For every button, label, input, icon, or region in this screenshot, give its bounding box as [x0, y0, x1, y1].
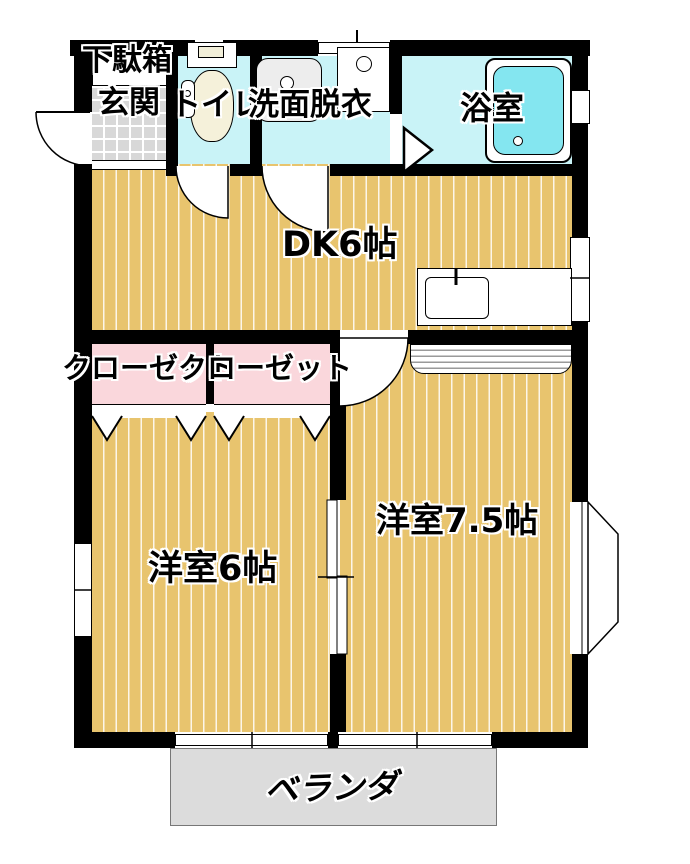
wall-dk-south: [408, 330, 588, 344]
bathroom-label: 浴室: [460, 92, 524, 124]
wall-toprow-dk: [330, 164, 572, 176]
bathroom-window: [570, 90, 590, 124]
genkan-label: 玄関: [98, 88, 160, 119]
wall-top: [390, 40, 590, 56]
bathtub-drain: [513, 136, 523, 146]
closet-left-door-band: [92, 404, 206, 418]
veranda: ベランダ: [170, 748, 497, 826]
wall-toprow-dk: [166, 164, 178, 176]
bath-doorway: [390, 114, 402, 164]
washroom-label: 洗面脱衣: [248, 90, 372, 121]
veranda-window-right: [338, 734, 492, 746]
washing-machine-door: [356, 56, 372, 72]
getabako-label: 下駄箱: [82, 46, 172, 76]
closet-right-label: クローゼット: [178, 354, 352, 383]
toilet-tank-lid: [198, 46, 224, 58]
wall-right: [572, 124, 588, 237]
western75-label: 洋室7.5帖: [376, 504, 538, 538]
veranda-label: ベランダ: [263, 768, 403, 806]
wall-right: [572, 322, 588, 502]
wall-room-divider: [330, 654, 346, 732]
wall-top: [223, 40, 318, 56]
wall-bottom: [74, 732, 175, 748]
bay-window-icon: [570, 502, 618, 654]
floor-plan: ベランダ: [0, 0, 690, 864]
wall-bottom: [328, 732, 338, 748]
wall-right: [572, 40, 588, 90]
kitchen-sink: [425, 277, 489, 319]
entrance-doorway: [74, 112, 92, 164]
western6-left-window: [74, 543, 92, 637]
wall-washroom-bath: [390, 56, 402, 114]
wall-bottom: [492, 732, 588, 748]
wall-toprow-dk: [230, 164, 262, 176]
kitchen-window: [570, 237, 590, 322]
dk-doorway-gap: [340, 330, 408, 344]
dk-label: DK6帖: [282, 228, 398, 263]
western6-label: 洋室6帖: [148, 552, 277, 587]
closet-right-door-band: [214, 404, 330, 418]
veranda-window-left: [175, 734, 328, 746]
shutter-panel: [410, 344, 572, 374]
genkan-step: [92, 160, 168, 170]
